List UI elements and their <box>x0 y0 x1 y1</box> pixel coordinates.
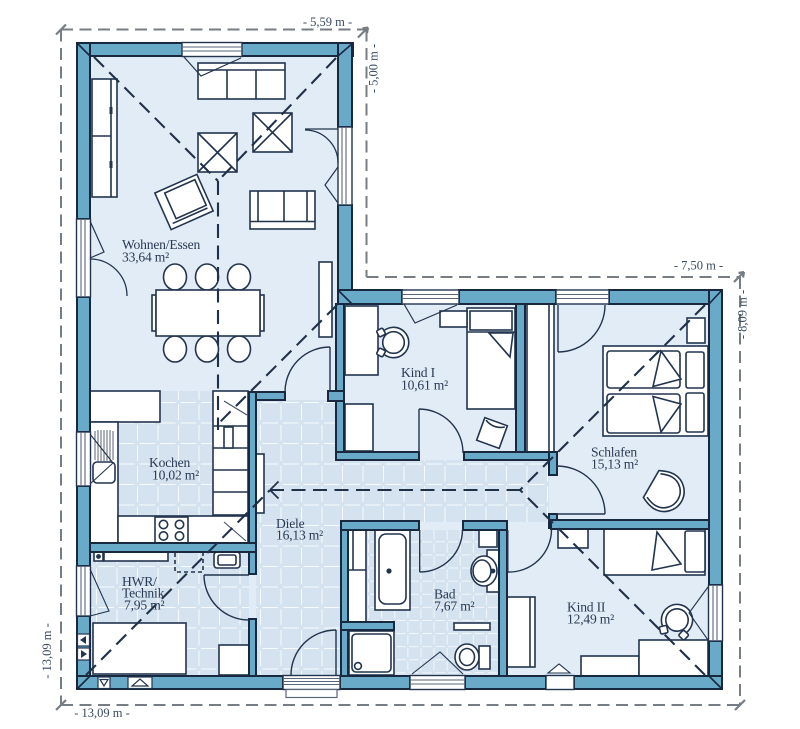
svg-text:12,49 m²: 12,49 m² <box>567 612 614 627</box>
svg-text:15,13 m²: 15,13 m² <box>591 457 638 472</box>
svg-text:10,61 m²: 10,61 m² <box>401 378 448 393</box>
svg-text:- 5,59 m -: - 5,59 m - <box>303 15 352 29</box>
svg-text:7,67 m²: 7,67 m² <box>434 599 475 614</box>
svg-text:7,95 m²: 7,95 m² <box>124 598 165 613</box>
svg-text:16,13 m²: 16,13 m² <box>276 528 323 543</box>
svg-text:- 5,00 m -: - 5,00 m - <box>367 44 381 93</box>
svg-text:- 13,09 m -: - 13,09 m - <box>40 623 54 679</box>
svg-text:- 8,09 m -: - 8,09 m - <box>736 290 750 339</box>
svg-text:- 13,09 m -: - 13,09 m - <box>74 706 130 720</box>
svg-text:10,02 m²: 10,02 m² <box>152 468 199 483</box>
svg-text:- 7,50 m -: - 7,50 m - <box>674 259 723 273</box>
svg-text:33,64 m²: 33,64 m² <box>122 250 169 265</box>
